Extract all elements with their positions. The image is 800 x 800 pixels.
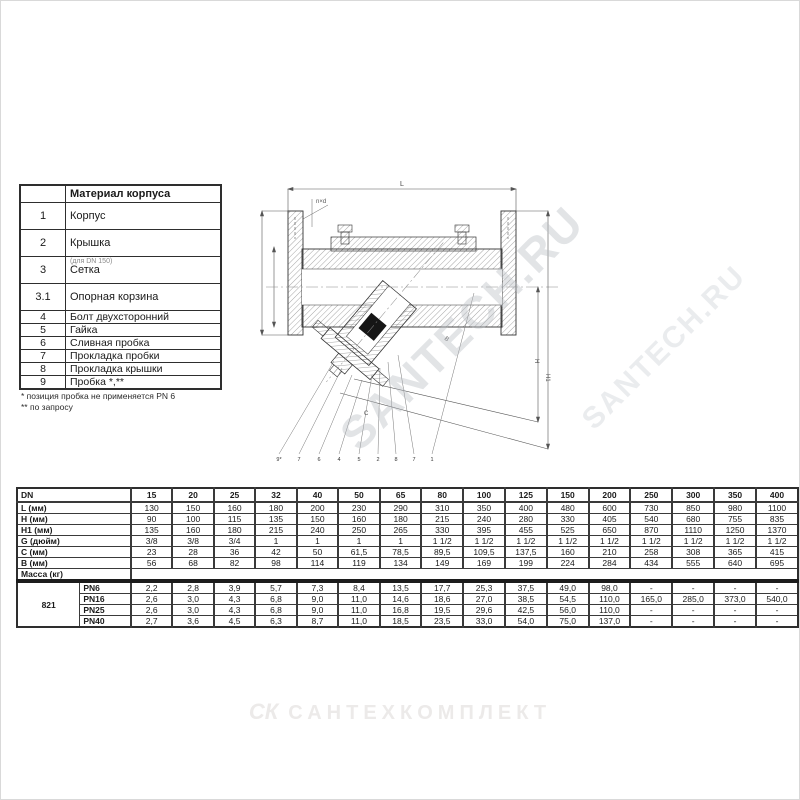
parts-row: 7Прокладка пробки [20, 350, 221, 363]
mass-cell: 18,6 [421, 594, 463, 605]
dims-cell: 695 [756, 558, 798, 569]
parts-row: 8Прокладка крышки [20, 363, 221, 376]
mass-cell: - [630, 605, 672, 616]
dims-cell: 680 [672, 514, 714, 525]
dims-cell: 284 [589, 558, 631, 569]
callout-number: 1 [430, 457, 433, 463]
part-name: Прокладка крышки [66, 363, 222, 376]
dims-cell: 1 [380, 536, 422, 547]
mass-cell: 540,0 [756, 594, 798, 605]
part-number: 8 [20, 363, 66, 376]
dims-cell: 600 [589, 502, 631, 514]
dn-value: 80 [421, 488, 463, 502]
part-number: 4 [20, 311, 66, 324]
callout-leader-line [359, 375, 372, 454]
parts-row: 9Пробка *,** [20, 376, 221, 390]
mass-cell: 6,8 [255, 594, 296, 605]
dims-cell: 555 [672, 558, 714, 569]
dn-value: 32 [255, 488, 296, 502]
mass-cell: 33,0 [463, 616, 505, 628]
callout-leader-line [339, 380, 362, 454]
dims-cell: 835 [756, 514, 798, 525]
mass-cell: 3,6 [172, 616, 213, 628]
mass-cell: 19,5 [421, 605, 463, 616]
part-number: 3 [20, 257, 66, 284]
dims-cell: 415 [756, 547, 798, 558]
mass-cell: - [672, 616, 714, 628]
dims-cell: 1 1/2 [630, 536, 672, 547]
dims-cell: 280 [505, 514, 547, 525]
callout-number: 7 [412, 457, 415, 463]
dims-cell: 1110 [672, 525, 714, 536]
logo-text: САНТЕХКОМПЛЕКТ [288, 702, 551, 724]
mass-cell: 54,5 [547, 594, 589, 605]
dims-cell: 1250 [714, 525, 756, 536]
dims-cell: 3/8 [172, 536, 213, 547]
mass-cell: 2,7 [131, 616, 172, 628]
datasheet-page: Материал корпуса 1Корпус2Крышка3Сетка(дл… [0, 0, 800, 800]
dims-cell: 405 [589, 514, 631, 525]
dims-cell: 210 [589, 547, 631, 558]
dims-row-label: L (мм) [17, 502, 131, 514]
dims-cell: 1 1/2 [505, 536, 547, 547]
mass-cell: 11,0 [338, 594, 380, 605]
dims-cell: 365 [714, 547, 756, 558]
mass-cell: 38,5 [505, 594, 547, 605]
callout-number: 2 [376, 457, 379, 463]
mass-cell: 8,4 [338, 581, 380, 594]
mass-cell: 6,8 [255, 605, 296, 616]
footnote-1: * позиция пробка не применяется PN 6 [21, 391, 175, 402]
mass-cell: 54,0 [505, 616, 547, 628]
dims-cell: 395 [463, 525, 505, 536]
dims-cell: 23 [131, 547, 172, 558]
parts-header-title: Материал корпуса [66, 185, 222, 203]
dims-cell: 730 [630, 502, 672, 514]
dims-cell: 240 [463, 514, 505, 525]
parts-row: 2Крышка [20, 230, 221, 257]
dn-value: 350 [714, 488, 756, 502]
callout-number: 5 [357, 457, 360, 463]
mass-cell: 110,0 [589, 594, 631, 605]
dims-row: C (мм)232836425061,578,589,5109,5137,516… [17, 547, 798, 558]
pn-label: PN25 [80, 605, 131, 616]
dims-cell: 135 [255, 514, 296, 525]
dn-value: 200 [589, 488, 631, 502]
parts-row: 3Сетка(для DN 150) [20, 257, 221, 284]
mass-cell: 56,0 [547, 605, 589, 616]
mass-cell: - [672, 605, 714, 616]
part-name: Болт двухсторонний [66, 311, 222, 324]
mass-cell: - [714, 581, 756, 594]
dims-cell: 137,5 [505, 547, 547, 558]
part-name: Сетка(для DN 150) [66, 257, 222, 284]
dims-row: H (мм)9010011513515016018021524028033040… [17, 514, 798, 525]
part-number: 1 [20, 203, 66, 230]
footnote-2: ** по запросу [21, 402, 175, 413]
logo-mark-icon: СК [249, 699, 278, 724]
mass-cell: - [756, 616, 798, 628]
right-flange [501, 211, 516, 335]
dims-cell: 755 [714, 514, 756, 525]
part-number: 2 [20, 230, 66, 257]
mass-cell: 27,0 [463, 594, 505, 605]
dims-row: L (мм)1301501601802002302903103504004806… [17, 502, 798, 514]
mass-cell: 4,5 [214, 616, 255, 628]
dims-cell: 980 [714, 502, 756, 514]
mass-cell: 4,3 [214, 594, 255, 605]
callout-number: 8 [394, 457, 397, 463]
dims-cell: 250 [338, 525, 380, 536]
dims-row-label: H1 (мм) [17, 525, 131, 536]
diagonal-watermark-small: SANTECH.RU [576, 259, 753, 436]
part-name: Опорная корзина [66, 284, 222, 311]
dims-cell: 480 [547, 502, 589, 514]
dn-value: 15 [131, 488, 172, 502]
mass-cell: 16,8 [380, 605, 422, 616]
dims-row: H1 (мм)135160180215240250265330395455525… [17, 525, 798, 536]
dims-row-label: H (мм) [17, 514, 131, 525]
parts-table: Материал корпуса 1Корпус2Крышка3Сетка(дл… [19, 184, 222, 390]
mass-cell: 2,6 [131, 594, 172, 605]
dims-row-label: B (мм) [17, 558, 131, 569]
dims-row-label: C (мм) [17, 547, 131, 558]
part-name: Корпус [66, 203, 222, 230]
mass-empty-span [131, 569, 798, 582]
dims-cell: 180 [214, 525, 255, 536]
callout-leader-line [279, 361, 334, 454]
dim-label-L: L [400, 181, 404, 188]
part-name: Прокладка пробки [66, 350, 222, 363]
parts-header-empty [20, 185, 66, 203]
mass-cell: 6,3 [255, 616, 296, 628]
dims-cell: 525 [547, 525, 589, 536]
callout-leader-line [398, 355, 414, 454]
parts-header-row: Материал корпуса [20, 185, 221, 203]
dims-cell: 1100 [756, 502, 798, 514]
callout-numbers: 9*76452871 [276, 457, 433, 463]
dims-cell: 870 [630, 525, 672, 536]
valve-drawing: L n×d [236, 169, 581, 481]
dims-cell: 135 [131, 525, 172, 536]
mass-cell: 8,7 [297, 616, 338, 628]
figure-number: 821 [17, 581, 80, 627]
dims-cell: 1 1/2 [756, 536, 798, 547]
part-number: 6 [20, 337, 66, 350]
part-name: Крышка [66, 230, 222, 257]
part-name: Пробка *,** [66, 376, 222, 390]
dims-cell: 1 1/2 [714, 536, 756, 547]
callout-leader-line [319, 375, 352, 454]
dims-cell: 56 [131, 558, 172, 569]
dim-label-C: C [364, 411, 369, 417]
dims-cell: 98 [255, 558, 296, 569]
dims-cell: 540 [630, 514, 672, 525]
dims-cell: 400 [505, 502, 547, 514]
dn-value: 250 [630, 488, 672, 502]
pn-label: PN6 [80, 581, 131, 594]
mass-cell: - [756, 581, 798, 594]
parts-row: 3.1Опорная корзина [20, 284, 221, 311]
mass-cell: 137,0 [589, 616, 631, 628]
dims-cell: 100 [172, 514, 213, 525]
dims-cell: 224 [547, 558, 589, 569]
mass-cell: 373,0 [714, 594, 756, 605]
dims-cell: 1370 [756, 525, 798, 536]
dims-cell: 115 [214, 514, 255, 525]
dims-cell: 3/8 [131, 536, 172, 547]
mass-row: PN402,73,64,56,38,711,018,523,533,054,07… [17, 616, 798, 628]
dn-value: 40 [297, 488, 338, 502]
dims-cell: 160 [172, 525, 213, 536]
dims-cell: 265 [380, 525, 422, 536]
mass-cell: 165,0 [630, 594, 672, 605]
mass-cell: 25,3 [463, 581, 505, 594]
dims-cell: 1 1/2 [672, 536, 714, 547]
part-number: 9 [20, 376, 66, 390]
dims-cell: 150 [297, 514, 338, 525]
dims-cell: 850 [672, 502, 714, 514]
mass-cell: - [672, 581, 714, 594]
dims-cell: 310 [421, 502, 463, 514]
dimension-left [260, 211, 288, 335]
callout-leader-line [299, 368, 342, 454]
mass-cell: - [714, 616, 756, 628]
dims-cell: 330 [421, 525, 463, 536]
dims-header-row: DN15202532405065801001251502002503003504… [17, 488, 798, 502]
callout-number: 6 [317, 457, 320, 463]
dims-cell: 149 [421, 558, 463, 569]
dims-cell: 61,5 [338, 547, 380, 558]
mass-row: 821PN62,22,83,95,77,38,413,517,725,337,5… [17, 581, 798, 594]
mass-cell: 42,5 [505, 605, 547, 616]
mass-cell: 9,0 [297, 594, 338, 605]
part-number: 5 [20, 324, 66, 337]
dims-cell: 1 1/2 [547, 536, 589, 547]
dims-cell: 199 [505, 558, 547, 569]
dims-cell: 180 [380, 514, 422, 525]
mass-cell: 98,0 [589, 581, 631, 594]
mass-cell: 7,3 [297, 581, 338, 594]
part-number: 3.1 [20, 284, 66, 311]
callout-number: 9* [276, 457, 282, 463]
dims-cell: 1 1/2 [421, 536, 463, 547]
mass-cell: 23,5 [421, 616, 463, 628]
mass-cell: 49,0 [547, 581, 589, 594]
dims-cell: 640 [714, 558, 756, 569]
mass-cell: 3,0 [172, 594, 213, 605]
left-flange [288, 211, 303, 335]
dims-cell: 114 [297, 558, 338, 569]
mass-cell: 285,0 [672, 594, 714, 605]
part-name: Сливная пробка [66, 337, 222, 350]
mass-cell: 110,0 [589, 605, 631, 616]
dims-cell: 134 [380, 558, 422, 569]
dims-cell: 89,5 [421, 547, 463, 558]
mass-cell: 4,3 [214, 605, 255, 616]
parts-row: 4Болт двухсторонний [20, 311, 221, 324]
footnotes: * позиция пробка не применяется PN 6 ** … [21, 391, 175, 413]
dims-cell: 1 [297, 536, 338, 547]
mass-cell: 11,0 [338, 616, 380, 628]
mass-cell: 75,0 [547, 616, 589, 628]
dims-cell: 28 [172, 547, 213, 558]
dims-cell: 50 [297, 547, 338, 558]
dims-cell: 1 [255, 536, 296, 547]
mass-cell: 14,6 [380, 594, 422, 605]
dims-cell: 160 [547, 547, 589, 558]
mass-cell: 37,5 [505, 581, 547, 594]
dims-cell: 3/4 [214, 536, 255, 547]
dn-corner-label: DN [17, 488, 131, 502]
dims-cell: 82 [214, 558, 255, 569]
parts-row: 1Корпус [20, 203, 221, 230]
dims-cell: 42 [255, 547, 296, 558]
mass-cell: 17,7 [421, 581, 463, 594]
dims-row-label: G (дюйм) [17, 536, 131, 547]
dims-cell: 455 [505, 525, 547, 536]
mass-cell: 18,5 [380, 616, 422, 628]
mass-cell: 5,7 [255, 581, 296, 594]
dimensions-table: DN15202532405065801001251502002503003504… [16, 487, 799, 628]
dims-cell: 180 [255, 502, 296, 514]
callout-number: 7 [297, 457, 300, 463]
dims-cell: 258 [630, 547, 672, 558]
dims-cell: 308 [672, 547, 714, 558]
dn-value: 25 [214, 488, 255, 502]
part-number: 7 [20, 350, 66, 363]
dims-cell: 330 [547, 514, 589, 525]
dims-cell: 160 [214, 502, 255, 514]
dims-cell: 109,5 [463, 547, 505, 558]
dims-cell: 78,5 [380, 547, 422, 558]
mass-cell: 3,9 [214, 581, 255, 594]
mass-cell: - [756, 605, 798, 616]
mass-cell: 29,6 [463, 605, 505, 616]
dims-cell: 215 [421, 514, 463, 525]
dn-value: 100 [463, 488, 505, 502]
dims-cell: 290 [380, 502, 422, 514]
mass-cell: 2,8 [172, 581, 213, 594]
mass-row: PN252,63,04,36,89,011,016,819,529,642,55… [17, 605, 798, 616]
dims-cell: 169 [463, 558, 505, 569]
dim-label-nd: n×d [316, 199, 326, 205]
dims-row: G (дюйм)3/83/83/411111 1/21 1/21 1/21 1/… [17, 536, 798, 547]
part-name-overlay: (для DN 150) [70, 258, 112, 265]
mass-cell: - [630, 581, 672, 594]
dims-cell: 119 [338, 558, 380, 569]
part-name: Гайка [66, 324, 222, 337]
mass-cell: 2,6 [131, 605, 172, 616]
dims-cell: 215 [255, 525, 296, 536]
mass-cell: 9,0 [297, 605, 338, 616]
mass-cell: 2,2 [131, 581, 172, 594]
dims-cell: 1 [338, 536, 380, 547]
dims-cell: 150 [172, 502, 213, 514]
dn-value: 65 [380, 488, 422, 502]
dims-row: B (мм)5668829811411913414916919922428443… [17, 558, 798, 569]
dn-value: 50 [338, 488, 380, 502]
pn-label: PN40 [80, 616, 131, 628]
mass-header-row: Масса (кг) [17, 569, 798, 582]
dims-cell: 130 [131, 502, 172, 514]
dn-value: 300 [672, 488, 714, 502]
dims-cell: 1 1/2 [589, 536, 631, 547]
mass-cell: 13,5 [380, 581, 422, 594]
mass-cell: 3,0 [172, 605, 213, 616]
dn-value: 125 [505, 488, 547, 502]
dims-cell: 1 1/2 [463, 536, 505, 547]
dims-cell: 434 [630, 558, 672, 569]
dim-label-H: H [533, 359, 539, 363]
mass-cell: 11,0 [338, 605, 380, 616]
dims-cell: 230 [338, 502, 380, 514]
mass-row: PN162,63,04,36,89,011,014,618,627,038,55… [17, 594, 798, 605]
dims-cell: 350 [463, 502, 505, 514]
dn-value: 400 [756, 488, 798, 502]
dims-cell: 200 [297, 502, 338, 514]
dims-cell: 68 [172, 558, 213, 569]
y-strainer-section-drawing: L n×d [236, 169, 581, 481]
dims-cell: 240 [297, 525, 338, 536]
dn-value: 150 [547, 488, 589, 502]
dims-cell: 160 [338, 514, 380, 525]
parts-row: 6Сливная пробка [20, 337, 221, 350]
dims-cell: 90 [131, 514, 172, 525]
parts-row: 5Гайка [20, 324, 221, 337]
pn-label: PN16 [80, 594, 131, 605]
dim-label-H1: H1 [544, 374, 550, 382]
mass-label: Масса (кг) [17, 569, 131, 582]
dn-value: 20 [172, 488, 213, 502]
mass-cell: - [630, 616, 672, 628]
mass-cell: - [714, 605, 756, 616]
callout-number: 4 [337, 457, 340, 463]
dim-label-B: B [443, 336, 450, 343]
dims-cell: 36 [214, 547, 255, 558]
santehkomplekt-logo: СКСАНТЕХКОМПЛЕКТ [1, 699, 799, 725]
dims-cell: 650 [589, 525, 631, 536]
